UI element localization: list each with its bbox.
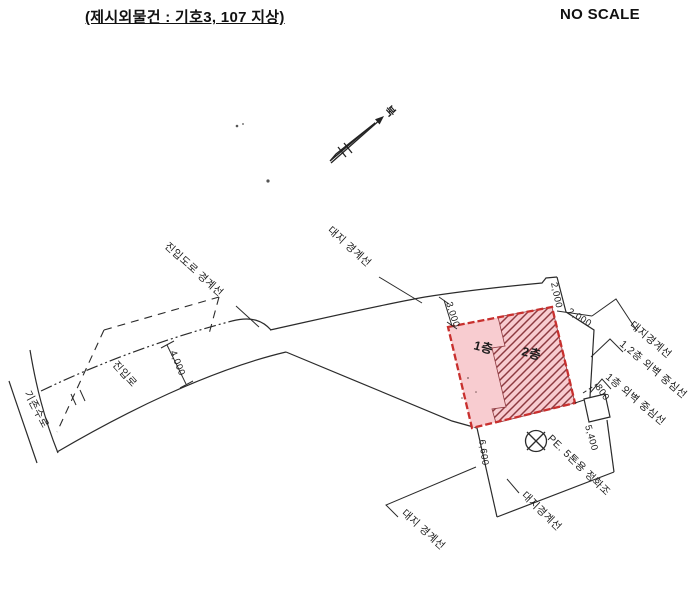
north-label: 북 bbox=[382, 103, 400, 120]
existing-waterway-label: 기존수로 bbox=[21, 389, 51, 431]
access-road-label: 진입로 bbox=[110, 358, 140, 389]
site-plan-page: (제시외물건 : 기호3, 107 지상) NO SCALE 북 bbox=[0, 0, 700, 605]
dim-5400: 5,400 bbox=[582, 424, 600, 452]
scan-specks bbox=[236, 123, 270, 182]
dashed-boundary-lines bbox=[57, 297, 219, 432]
north-arrow-flag bbox=[330, 123, 375, 161]
parcel-right-lower-edge bbox=[607, 420, 614, 472]
north-arrow: 북 bbox=[330, 103, 399, 163]
site-plan-drawing: 북 기존수로 진입로 4,000 bbox=[0, 0, 700, 605]
access-road-boundary-label: 진입도로 경계선 bbox=[162, 240, 226, 300]
boundary-label-top: 대지 경계선 bbox=[325, 224, 374, 270]
boundary-bottom-right-leader bbox=[507, 479, 519, 493]
boundary-label-bottom-left: 대지 경계선 bbox=[399, 507, 448, 553]
building-footprint: 1층 2층 bbox=[448, 307, 575, 428]
north-arrow-shaft bbox=[331, 118, 382, 163]
road-lower-edge bbox=[57, 352, 286, 452]
septic-tank-label: PE. 5톤용 정화조 bbox=[545, 433, 613, 499]
boundary-top-leader bbox=[379, 277, 422, 303]
septic-tank-symbol bbox=[526, 431, 547, 452]
road-width-value: 4,000 bbox=[167, 349, 187, 377]
boundary-label-bottom-right: 대지경계선 bbox=[519, 489, 565, 534]
dim-2000-b: 2,000 bbox=[565, 306, 593, 329]
access-road-boundary-leader bbox=[236, 306, 259, 327]
parcel-lower-left-edge bbox=[286, 352, 477, 428]
dim-2000-a: 2,000 bbox=[548, 281, 564, 309]
access-road-lines bbox=[41, 319, 477, 452]
boundary-bottom-left-leader bbox=[386, 467, 476, 517]
dim-3000: 3,000 bbox=[443, 301, 462, 329]
dim-6600: 6,600 bbox=[476, 439, 491, 467]
